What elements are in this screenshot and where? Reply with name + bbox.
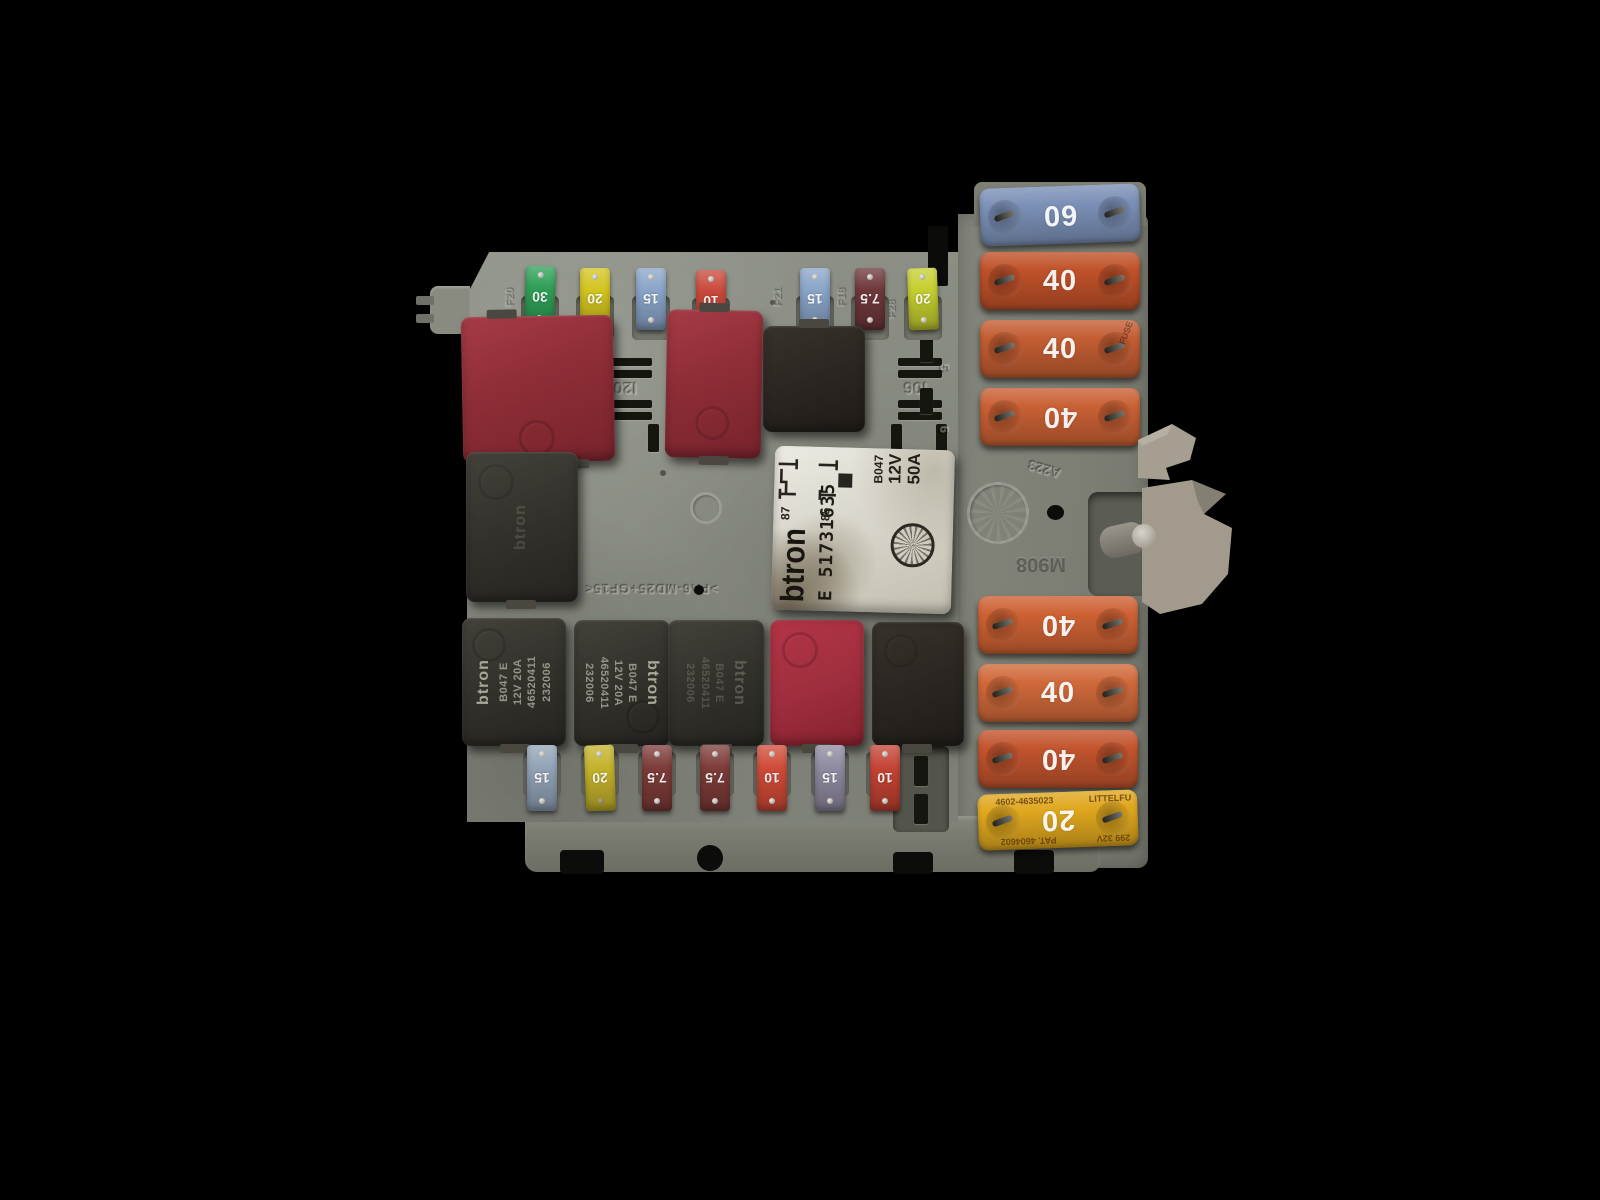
relay-red-middle [770,620,864,746]
relay-red-large [461,315,616,464]
mini-fuse-7-5a: 7.5 [855,268,885,330]
mini-fuse-10a: 10 [870,745,900,811]
mini-fuse-15a: 15 [815,745,845,811]
relay-black-1: btron B047 E 12V 20A 46520411 232006 [462,618,566,746]
mini-fuse-15a: 15 [527,745,557,811]
maxi-fuse-40a: 40 [978,596,1138,654]
relay-brand: btron [511,504,532,550]
fuse-amp-label: 10 [757,745,787,811]
relay-black-3: btron B047 E 46520411 232006 [668,620,764,746]
fuse-code-emboss: F20 [504,288,516,307]
mini-fuse-20a: 20 [907,267,939,330]
maxi-fuse-40a: 40 [978,664,1138,722]
skirt-notch [893,852,933,874]
fuse-amp-label: 7.5 [642,745,672,811]
relay-red-small [665,309,764,459]
fuse-amp-label: 40 [978,664,1138,722]
brand-emblem-emboss [967,482,1029,544]
maxi-fuse-40a: 40 FUSE [980,320,1140,378]
fuse-marking: LITTELFU [1089,792,1132,803]
fuse-amp-label: 10 [870,745,900,811]
main-relay-ratings: B047 12V 50A [872,452,924,485]
fuse-marking: 4602-4635023 [995,795,1053,807]
relay-line: 232006 [540,662,554,702]
relay-line: 232006 [582,663,596,703]
fuse-box-photo: I20 I06 >PA6-MD25+GF15< A223 M908 5 6 F2… [0,0,1600,1200]
relay-line: B047 E [625,663,639,703]
relay-circuit-diagram: 87 85 [773,446,867,526]
relay-brand: btron [728,660,749,706]
fuse-amp-label: 20 [907,267,939,330]
fuse-amp-label: 15 [815,745,845,811]
fuse-amp-label: 40 [980,388,1140,446]
fuse-code-emboss: F18 [836,288,848,307]
fuse-marking: PAT. 4604602 [1001,835,1057,847]
digit-emboss: 5 [937,364,952,371]
mold-code-b-emboss: M908 [1016,552,1066,575]
fuse-amp-label: 20 [584,744,616,811]
empty-fuse-slot [893,746,949,832]
mini-fuse-15a: 15 [636,268,666,330]
fuse-marking: 299 32V [1097,832,1131,843]
relay-line: 46520411 [596,657,610,709]
skirt-notch [560,850,604,874]
fuse-amp-label: 40 [978,596,1138,654]
socket-code-left: I20 [614,378,638,398]
fuse-amp-label: 40 [980,320,1140,378]
relay-line: 46520411 [697,657,711,709]
digit-emboss: 6 [937,426,952,433]
left-prong [416,314,434,323]
fuse-amp-label: 15 [636,268,666,330]
fuse-amp-label: 40 [978,730,1138,788]
relay-line: 12V 20A [511,659,525,705]
socket-slot [608,358,652,366]
maxi-fuse-20a: 20 4602-4635023 LITTELFU PAT. 4604602 29… [977,789,1139,851]
main-relay: btron E 51731635 87 85 B047 12V 50A [771,446,955,615]
socket-slot [920,388,933,414]
relay-line: 12V 20A [611,660,625,706]
maxi-fuse-40a: 40 [980,388,1140,446]
brand-emblem [890,523,935,568]
socket-slot [898,370,942,378]
socket-slot [608,370,652,378]
relay-line: 46520411 [525,656,539,708]
skirt-notch [1014,850,1054,874]
maxi-fuse-40a: 40 [978,730,1138,788]
fuse-amp-label: 15 [527,745,557,811]
fuse-amp-label: 7.5 [700,745,730,811]
relay-line: B047 E [712,663,726,703]
svg-text:85: 85 [818,507,832,521]
svg-text:87: 87 [778,506,792,520]
relay-brand: btron [474,659,495,705]
fuse-amp-label: 60 [979,183,1141,247]
relay-line: B047 E [497,662,511,702]
main-relay-brand: btron [775,528,814,603]
fuse-amp-label: 7.5 [855,268,885,330]
mini-fuse-10a: 10 [757,745,787,811]
relay-black-left: btron [466,452,578,602]
left-prong [416,296,434,305]
round-emboss [690,492,722,524]
relay-black-4 [872,622,964,746]
board-hole [694,585,704,595]
fuse-amp-label: 40 [980,252,1140,310]
relay-dark [763,326,865,432]
socket-slot [608,400,652,408]
socket-slot [648,424,659,452]
mini-fuse-20a: 20 [584,744,616,811]
skirt-hole [697,845,723,871]
relay-line: 232006 [683,663,697,703]
board-hole [1047,505,1064,520]
maxi-fuse-60a: 60 [979,183,1141,247]
mini-fuse-7-5a: 7.5 [700,745,730,811]
maxi-fuse-40a: 40 [980,252,1140,310]
mini-fuse-7-5a: 7.5 [642,745,672,811]
socket-slot [608,412,652,420]
metal-stud-cap [1132,524,1156,548]
